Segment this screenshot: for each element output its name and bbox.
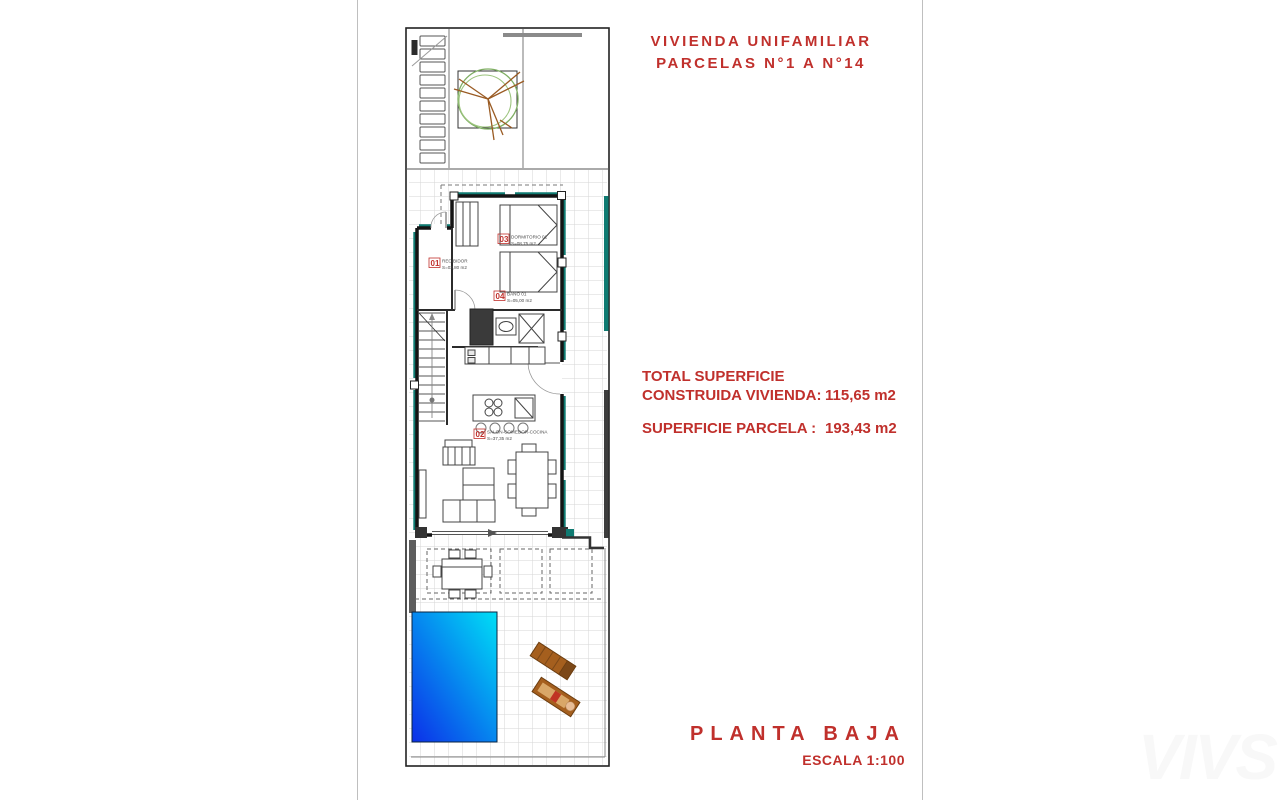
svg-text:S=03,80 m2: S=03,80 m2 <box>442 265 467 270</box>
svg-text:04: 04 <box>496 292 505 301</box>
total-surface-value: 115,65 m2 <box>825 386 942 405</box>
title-line-2: PARCELAS N°1 A N°14 <box>636 53 886 75</box>
wardrobe <box>456 202 478 246</box>
plan-name: PLANTA BAJA <box>690 723 905 746</box>
parcel-surface-label: SUPERFICIE PARCELA : <box>642 419 825 438</box>
plan-footer: PLANTA BAJA ESCALA 1:100 <box>690 723 905 768</box>
svg-text:01: 01 <box>431 259 440 268</box>
svg-text:SALON-COMEDOR-COCINA: SALON-COMEDOR-COCINA <box>487 430 548 435</box>
watermark-logo: VIVS <box>1138 720 1276 794</box>
total-surface-label-2: CONSTRUIDA VIVIENDA: <box>642 386 825 405</box>
drawing-title: VIVIENDA UNIFAMILIAR PARCELAS N°1 A N°14 <box>636 31 886 75</box>
swimming-pool <box>412 612 497 742</box>
shower <box>519 314 544 343</box>
title-line-1: VIVIENDA UNIFAMILIAR <box>636 31 886 53</box>
bath-storage <box>470 309 493 345</box>
kitchen-island <box>473 395 535 421</box>
kitchen-counter <box>465 347 545 364</box>
kitchen-sink <box>468 350 475 356</box>
svg-text:S=08,75 m2: S=08,75 m2 <box>511 241 536 246</box>
bed-2 <box>500 252 557 292</box>
svg-text:BAÑO 01: BAÑO 01 <box>507 291 527 297</box>
parcel-surface-value: 193,43 m2 <box>825 419 942 438</box>
washbasin <box>496 318 516 335</box>
floor-plan-drawing: 01 RECIBIDOR S=03,80 m2 03 DORMITORIO 01… <box>0 0 1280 800</box>
svg-text:DORMITORIO 01: DORMITORIO 01 <box>511 235 548 240</box>
plan-scale: ESCALA 1:100 <box>690 752 905 768</box>
svg-text:03: 03 <box>500 235 509 244</box>
tv-cabinet <box>419 470 426 518</box>
svg-text:RECIBIDOR: RECIBIDOR <box>442 259 468 264</box>
surface-summary: TOTAL SUPERFICIE CONSTRUIDA VIVIENDA: 11… <box>642 367 942 438</box>
svg-text:02: 02 <box>476 430 485 439</box>
svg-text:S=05,00 m2: S=05,00 m2 <box>507 298 532 303</box>
total-surface-label-1: TOTAL SUPERFICIE <box>642 367 942 386</box>
armchair <box>443 440 475 465</box>
pergola-beam <box>503 33 582 37</box>
svg-text:S=37,35 m2: S=37,35 m2 <box>487 436 512 441</box>
